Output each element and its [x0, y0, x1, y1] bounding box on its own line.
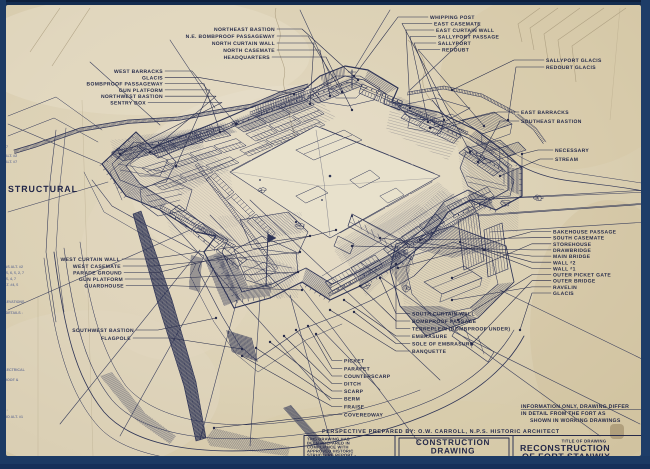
- svg-text:NORTH CASEMATE: NORTH CASEMATE: [223, 48, 275, 54]
- svg-text:PARAPET: PARAPET: [344, 367, 370, 373]
- svg-text:COVEREDWAY: COVEREDWAY: [344, 413, 383, 419]
- svg-text:SENTRY BOX: SENTRY BOX: [110, 101, 146, 107]
- svg-text:N.E. BOMBPROOF PASSAGEWAY: N.E. BOMBPROOF PASSAGEWAY: [186, 34, 276, 40]
- svg-text:GLACIS: GLACIS: [553, 291, 574, 297]
- svg-text:IN DETAIL FROM THE FORT AS: IN DETAIL FROM THE FORT AS: [521, 411, 606, 417]
- svg-text:EAST CASEMATE: EAST CASEMATE: [434, 22, 481, 28]
- svg-text:SCARP: SCARP: [344, 389, 364, 395]
- svg-text:HEADQUARTERS: HEADQUARTERS: [224, 55, 271, 61]
- svg-text:GUN PLATFORM: GUN PLATFORM: [119, 88, 163, 94]
- svg-text:NORTH CURTAIN WALL: NORTH CURTAIN WALL: [212, 41, 275, 47]
- svg-text:SALLYPORT: SALLYPORT: [438, 41, 471, 47]
- svg-text:BOMBPROOF PASSAGE: BOMBPROOF PASSAGE: [412, 319, 477, 325]
- svg-text:WEST BARRACKS: WEST BARRACKS: [114, 69, 163, 75]
- svg-text:EAST BARRACKS: EAST BARRACKS: [521, 110, 569, 116]
- svg-text:STREAM: STREAM: [555, 157, 578, 163]
- svg-text:REDOUBT GLACIS: REDOUBT GLACIS: [546, 65, 596, 71]
- svg-text:BERM: BERM: [344, 397, 360, 403]
- svg-text:INFORMATION ONLY, DRAWING DIFF: INFORMATION ONLY, DRAWING DIFFER: [521, 404, 629, 410]
- svg-text:WEST CURTAIN WALL: WEST CURTAIN WALL: [61, 257, 120, 263]
- svg-text:DRAWING: DRAWING: [431, 447, 475, 456]
- svg-text:DITCH: DITCH: [344, 382, 361, 388]
- svg-text:DRAWBRIDGE: DRAWBRIDGE: [553, 248, 592, 254]
- svg-text:SOUTHEAST BASTION: SOUTHEAST BASTION: [521, 119, 582, 125]
- svg-text:STOREHOUSE: STOREHOUSE: [553, 242, 592, 248]
- svg-text:STRUCTURAL: STRUCTURAL: [8, 184, 78, 194]
- svg-text:PARADE GROUND: PARADE GROUND: [73, 271, 122, 277]
- svg-text:RAVELIN: RAVELIN: [553, 285, 577, 291]
- svg-text:TERREPLEIN (BOMBPROOF UNDER): TERREPLEIN (BOMBPROOF UNDER): [412, 327, 510, 333]
- svg-text:SOLE OF EMBRASURE: SOLE OF EMBRASURE: [412, 342, 474, 348]
- svg-text:WEST CASEMATE: WEST CASEMATE: [73, 264, 121, 270]
- svg-text:NORTHEAST BASTION: NORTHEAST BASTION: [214, 27, 275, 33]
- svg-text:GUARDHOUSE: GUARDHOUSE: [84, 284, 124, 290]
- svg-text:FRAISE: FRAISE: [344, 405, 365, 411]
- svg-text:OUTER BRIDGE: OUTER BRIDGE: [553, 279, 596, 285]
- svg-text:WHIPPING POST: WHIPPING POST: [430, 15, 475, 21]
- svg-text:NECESSARY: NECESSARY: [555, 148, 589, 154]
- svg-text:SOUTH CURTAIN WALL: SOUTH CURTAIN WALL: [412, 312, 475, 318]
- svg-text:WALL #1: WALL #1: [553, 266, 576, 272]
- svg-text:SALLYPORT PASSAGE: SALLYPORT PASSAGE: [438, 35, 500, 41]
- svg-text:EMBRASURE: EMBRASURE: [412, 334, 448, 340]
- svg-text:SOUTHWEST BASTION: SOUTHWEST BASTION: [72, 328, 134, 334]
- svg-text:PICKET: PICKET: [344, 359, 364, 365]
- svg-text:SOUTH CASEMATE: SOUTH CASEMATE: [553, 236, 605, 242]
- svg-text:OUTER PICKET GATE: OUTER PICKET GATE: [553, 273, 611, 279]
- svg-text:EAST CURTAIN WALL: EAST CURTAIN WALL: [436, 28, 494, 34]
- svg-text:REDOUBT: REDOUBT: [442, 48, 469, 54]
- svg-text:FLAGPOLE: FLAGPOLE: [101, 336, 131, 342]
- svg-text:SHOWN IN WORKING DRAWINGS: SHOWN IN WORKING DRAWINGS: [530, 418, 621, 424]
- svg-text:BANQUETTE: BANQUETTE: [412, 349, 447, 355]
- svg-text:PERSPECTIVE PREPARED BY: O.: PERSPECTIVE PREPARED BY: O.W. CARROLL, N…: [322, 429, 560, 435]
- svg-text:GUN PLATFORM: GUN PLATFORM: [79, 277, 123, 283]
- svg-text:BAKEHOUSE PASSAGE: BAKEHOUSE PASSAGE: [553, 230, 617, 236]
- svg-text:NORTHWEST BASTION: NORTHWEST BASTION: [101, 94, 163, 100]
- svg-text:GLACIS: GLACIS: [142, 75, 163, 81]
- svg-text:BOMBPROOF PASSAGEWAY: BOMBPROOF PASSAGEWAY: [87, 82, 164, 88]
- svg-text:SALLYPORT GLACIS: SALLYPORT GLACIS: [546, 58, 602, 64]
- svg-text:COUNTERSCARP: COUNTERSCARP: [344, 374, 391, 380]
